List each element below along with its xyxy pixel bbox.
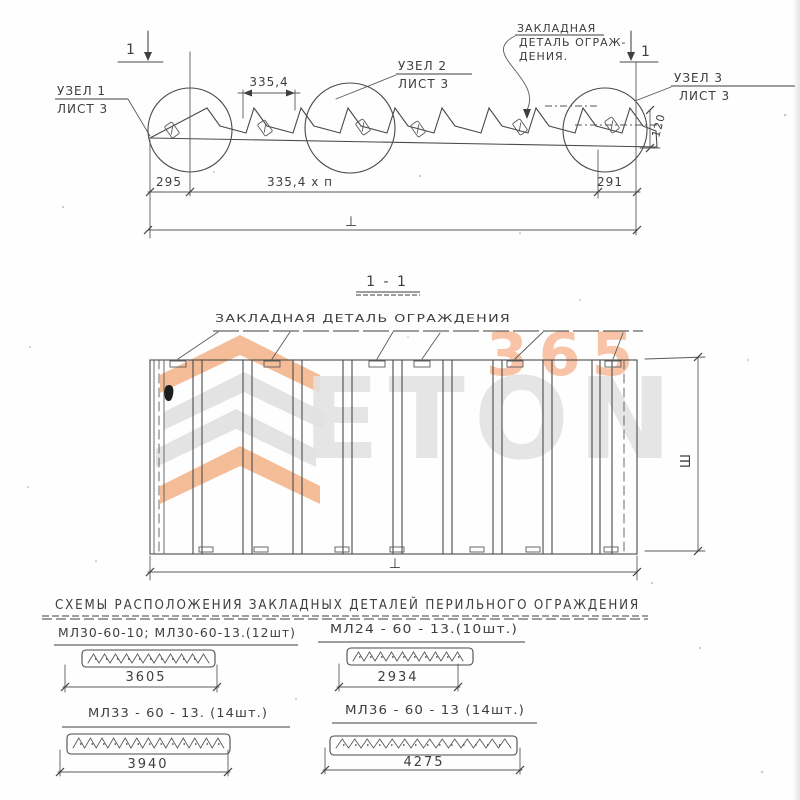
node2-sheet: ЛИСТ 3 (398, 77, 449, 91)
scheme-4-label: МЛ36 - 60 - 13 (14шт.) (345, 703, 525, 717)
node2-leader (336, 75, 396, 99)
section-arrow-icon (144, 52, 152, 61)
node1-label: УЗЕЛ 1 ЛИСТ 3 (55, 84, 150, 136)
callout-arrow-icon (523, 109, 531, 119)
scheme-2-dim: 2934 (377, 670, 418, 685)
detail-circle-node2 (305, 83, 395, 173)
scanned-drawing-page: ETON 365 1 1 (0, 0, 800, 800)
node3-title: УЗЕЛ 3 (674, 71, 723, 85)
node1-leader (128, 99, 150, 136)
scheme-1: МЛ30-60-10; МЛ30-60-13.(12шт) 3605 (54, 626, 298, 692)
dim-total-symbol: ⊥ (345, 214, 359, 230)
node1-sheet: ЛИСТ 3 (57, 102, 108, 116)
section-label-text: ЗАКЛАДНАЯ ДЕТАЛЬ ОГРАЖДЕНИЯ (215, 312, 511, 325)
dim-step-value: 335,4 (249, 75, 288, 89)
dim-step: 335,4 (238, 75, 300, 118)
scheme-2-strip (347, 648, 473, 665)
section-marker-number: 1 (641, 44, 652, 60)
schemes-heading: СХЕМЫ РАСПОЛОЖЕНИЯ ЗАКЛАДНЫХ ДЕТАЛЕЙ ПЕР… (55, 597, 640, 613)
scheme-4-strip (330, 736, 517, 755)
profile-baseline (150, 138, 657, 147)
scheme-1-label: МЛ30-60-10; МЛ30-60-13.(12шт) (58, 626, 296, 640)
dim-panel-width-symbol: Ш (679, 452, 694, 468)
node3-sheet: ЛИСТ 3 (679, 89, 730, 103)
section-marker-number: 1 (126, 42, 137, 58)
dim-right-value: 291 (597, 175, 623, 189)
dim-panel-length: ⊥ (146, 556, 641, 580)
callout-line2: ДЕТАЛЬ ОГРАЖ- (519, 36, 626, 49)
section-title-text: 1 - 1 (366, 274, 408, 290)
scheme-2-label: МЛ24 - 60 - 13.(10шт.) (330, 622, 518, 636)
dim-left-value: 295 (156, 175, 182, 189)
scheme-3: МЛ33 - 60 - 13. (14шт.) 3940 (56, 706, 290, 776)
elevation-view: 1 1 УЗЕЛ 1 (55, 22, 795, 238)
dim-chain: 295 335,4 x п 291 ⊥ (144, 140, 641, 238)
scheme-3-label: МЛ33 - 60 - 13. (14шт.) (88, 706, 268, 720)
node2-label: УЗЕЛ 2 ЛИСТ 3 (336, 59, 472, 99)
node1-title: УЗЕЛ 1 (57, 84, 106, 98)
railing-detail-callout: ЗАКЛАДНАЯ ДЕТАЛЬ ОГРАЖ- ДЕНИЯ. (503, 22, 626, 119)
scheme-4: МЛ36 - 60 - 13 (14шт.) 4275 (321, 703, 537, 774)
beton365-watermark: ETON 365 (156, 320, 681, 504)
callout-line1: ЗАКЛАДНАЯ (517, 22, 596, 35)
embedded-plates (164, 117, 619, 139)
scheme-2: МЛ24 - 60 - 13.(10шт.) 2934 (318, 622, 525, 691)
node3-label: УЗЕЛ 3 ЛИСТ 3 (635, 71, 795, 103)
bottom-embed-plates (199, 547, 618, 552)
node3-leader (635, 87, 671, 101)
blueprint-drawing: ETON 365 1 1 (0, 0, 800, 800)
callout-line3: ДЕНИЯ. (519, 50, 568, 63)
section-marker-left: 1 (118, 31, 163, 62)
scan-edge-shadow (793, 0, 800, 800)
sawtooth-profile (150, 108, 657, 147)
scheme-3-dim: 3940 (127, 757, 168, 772)
scheme-4-dim: 4275 (403, 755, 444, 770)
dim-panel-length-symbol: ⊥ (389, 556, 403, 572)
dim-edge-height-value: 120 (649, 112, 668, 139)
section-arrow-icon (627, 52, 635, 61)
node2-title: УЗЕЛ 2 (398, 59, 447, 73)
dim-middle-value: 335,4 x п (267, 175, 333, 189)
schemes-section: СХЕМЫ РАСПОЛОЖЕНИЯ ЗАКЛАДНЫХ ДЕТАЛЕЙ ПЕР… (42, 597, 648, 776)
scheme-1-dim: 3605 (125, 670, 166, 685)
ink-blot (164, 385, 173, 401)
section-title: 1 - 1 (356, 274, 420, 295)
scheme-3-strip (67, 734, 230, 754)
